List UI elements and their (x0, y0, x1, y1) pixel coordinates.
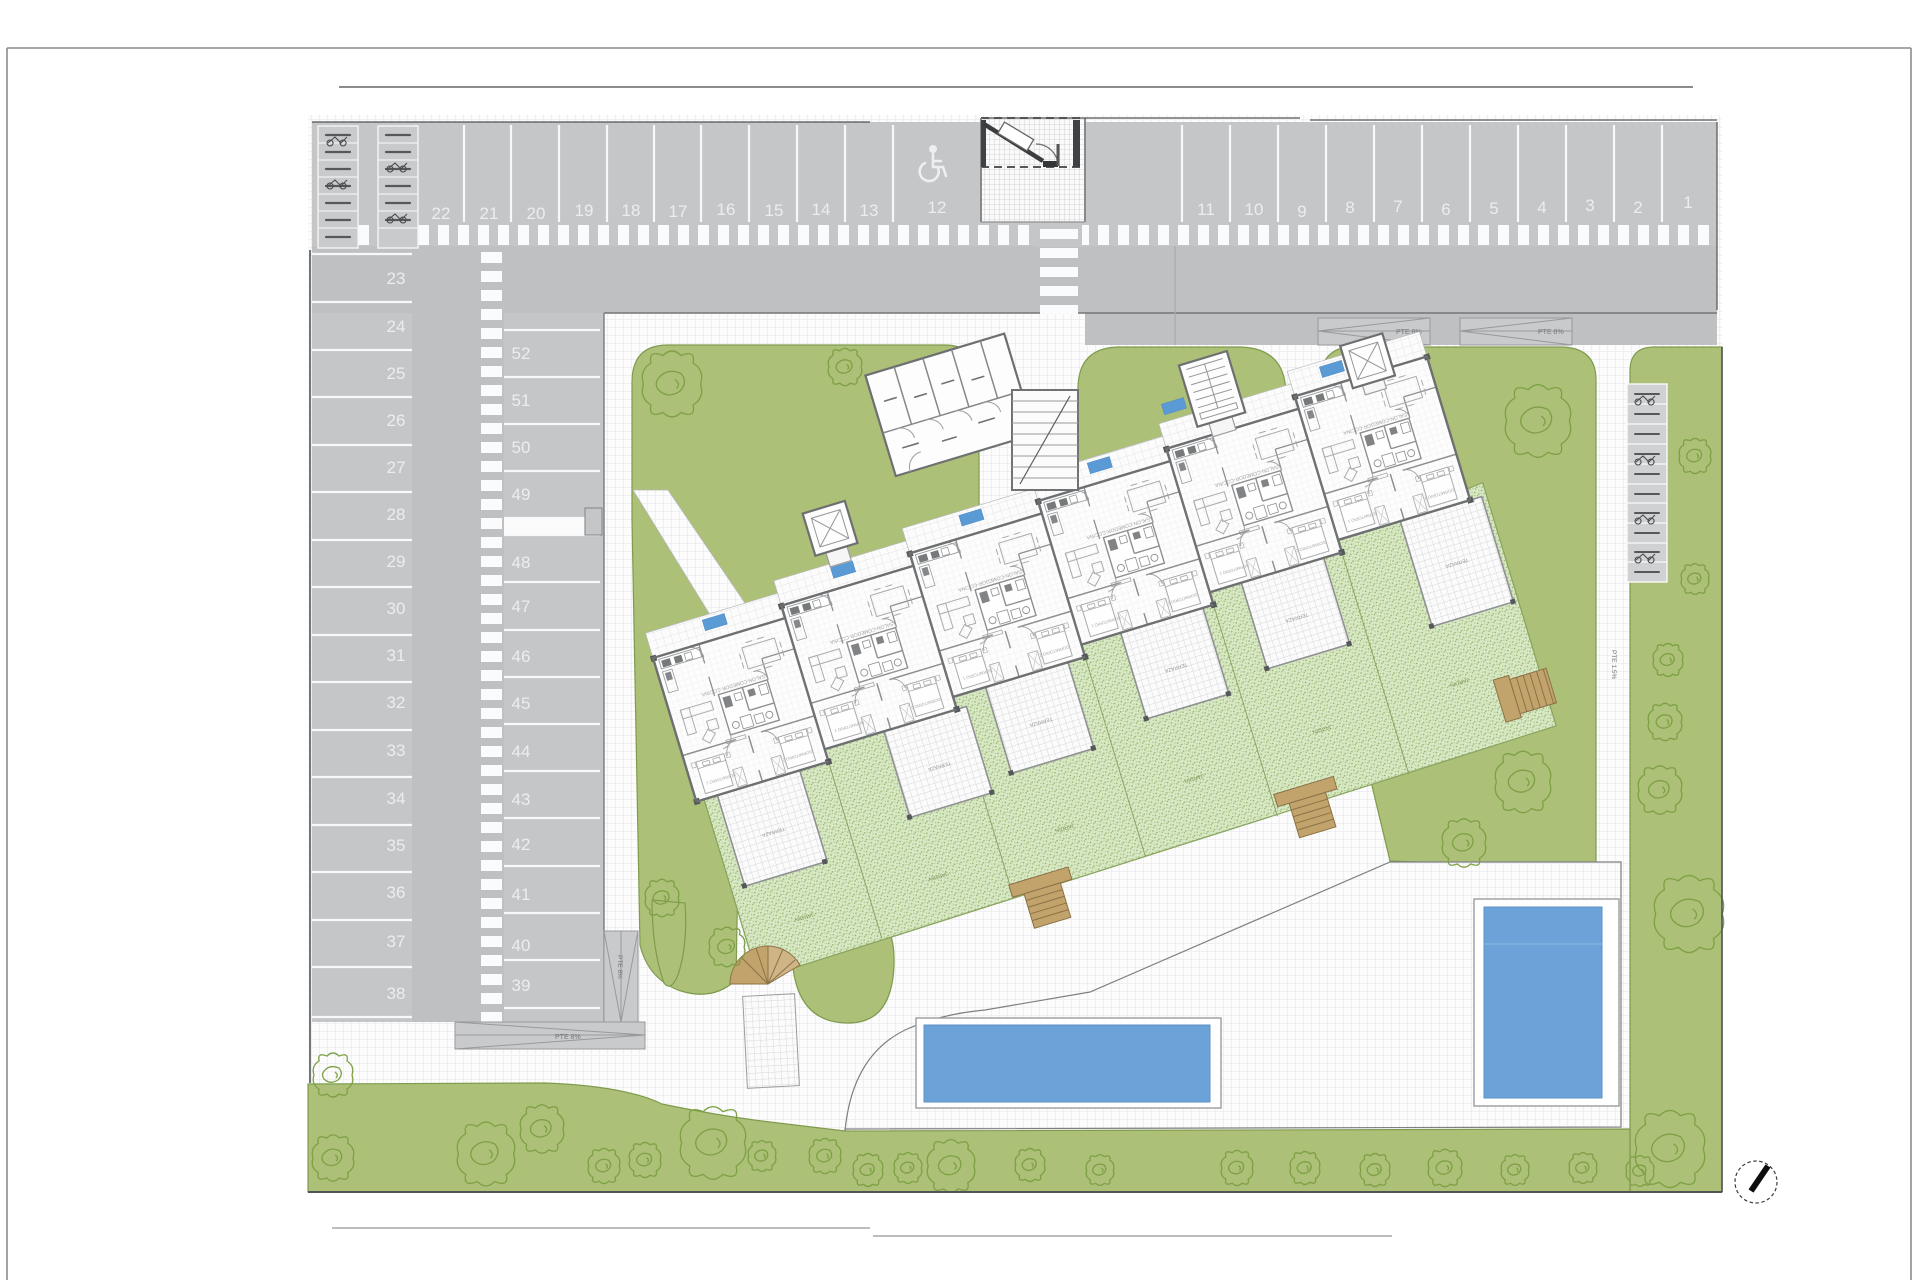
svg-text:24: 24 (387, 317, 406, 336)
svg-text:44: 44 (512, 742, 531, 761)
svg-text:37: 37 (387, 932, 406, 951)
svg-text:41: 41 (512, 885, 531, 904)
svg-text:35: 35 (387, 836, 406, 855)
svg-text:PTE 8%: PTE 8% (555, 1034, 581, 1041)
svg-text:27: 27 (387, 458, 406, 477)
svg-text:48: 48 (512, 553, 531, 572)
svg-text:14: 14 (812, 200, 831, 219)
svg-text:36: 36 (387, 883, 406, 902)
svg-text:6: 6 (1441, 200, 1450, 219)
svg-text:18: 18 (622, 201, 641, 220)
svg-text:5: 5 (1489, 199, 1498, 218)
svg-text:49: 49 (512, 485, 531, 504)
svg-text:3: 3 (1585, 196, 1594, 215)
svg-text:29: 29 (387, 552, 406, 571)
svg-text:34: 34 (387, 789, 406, 808)
svg-text:32: 32 (387, 693, 406, 712)
svg-text:26: 26 (387, 411, 406, 430)
svg-text:4: 4 (1537, 198, 1546, 217)
svg-text:25: 25 (387, 364, 406, 383)
svg-text:43: 43 (512, 790, 531, 809)
svg-text:47: 47 (512, 597, 531, 616)
svg-text:38: 38 (387, 984, 406, 1003)
svg-text:40: 40 (512, 936, 531, 955)
svg-text:PTE 8%: PTE 8% (616, 955, 623, 979)
svg-text:52: 52 (512, 344, 531, 363)
svg-text:21: 21 (480, 204, 499, 223)
svg-text:28: 28 (387, 505, 406, 524)
svg-text:45: 45 (512, 694, 531, 713)
svg-text:7: 7 (1393, 197, 1402, 216)
svg-text:22: 22 (432, 204, 451, 223)
svg-text:2: 2 (1633, 198, 1642, 217)
svg-text:30: 30 (387, 599, 406, 618)
svg-text:15: 15 (765, 201, 784, 220)
svg-text:51: 51 (512, 391, 531, 410)
svg-text:10: 10 (1245, 200, 1264, 219)
svg-text:20: 20 (527, 204, 546, 223)
svg-text:31: 31 (387, 646, 406, 665)
svg-text:PTE 1.5%: PTE 1.5% (1610, 650, 1617, 679)
svg-text:11: 11 (1197, 200, 1215, 219)
svg-text:50: 50 (512, 438, 531, 457)
svg-text:9: 9 (1297, 202, 1306, 221)
svg-text:12: 12 (928, 198, 947, 217)
svg-text:39: 39 (512, 976, 531, 995)
svg-text:1: 1 (1683, 193, 1692, 212)
svg-text:16: 16 (717, 200, 736, 219)
svg-text:17: 17 (669, 202, 688, 221)
svg-text:33: 33 (387, 741, 406, 760)
svg-text:PTE 8%: PTE 8% (1538, 329, 1564, 336)
svg-text:8: 8 (1345, 198, 1354, 217)
svg-text:13: 13 (860, 201, 879, 220)
svg-text:23: 23 (387, 269, 406, 288)
svg-text:19: 19 (575, 201, 594, 220)
svg-text:46: 46 (512, 647, 531, 666)
svg-text:42: 42 (512, 835, 531, 854)
